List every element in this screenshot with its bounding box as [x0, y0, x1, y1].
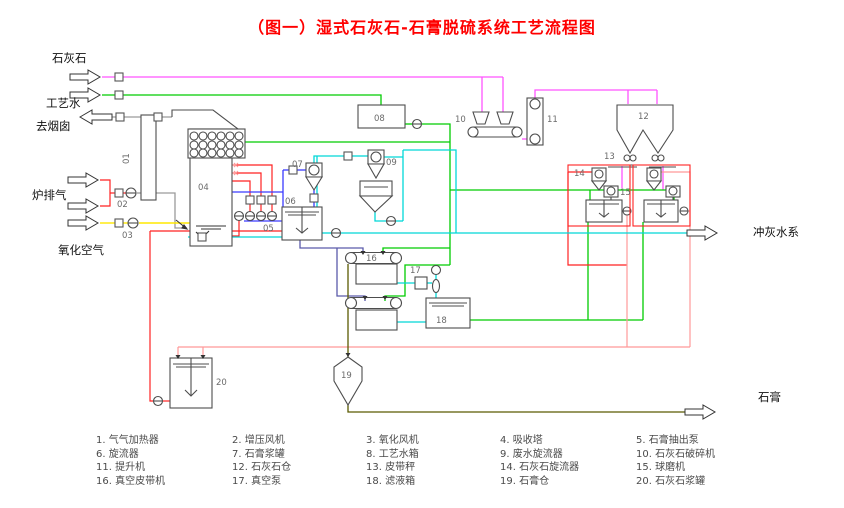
filtrate-water-line [188, 150, 687, 322]
tag-02: 02 [117, 200, 128, 210]
legend-item: 14. 石灰石旋流器 [500, 458, 636, 472]
tag-19: 19 [341, 371, 352, 381]
legend-item: 9. 废水旋流器 [500, 445, 636, 459]
tag-18: 18 [436, 316, 447, 326]
legend-item: 11. 提升机 [96, 458, 232, 472]
boiler-gas-arrow-1 [68, 173, 98, 187]
flow-diagram-page: （图一）湿式石灰石-石膏脱硫系统工艺流程图 [0, 0, 844, 508]
legend-item: 15. 球磨机 [636, 458, 786, 472]
ash-flush-label: 冲灰水系 [753, 225, 799, 239]
legend-item: 6. 旋流器 [96, 445, 232, 459]
process-water-pump [413, 120, 422, 129]
legend-item: 10. 石灰石破碎机 [636, 445, 786, 459]
tag-08: 08 [374, 114, 385, 124]
limestone-in-arrow [70, 70, 100, 84]
gypsum-label: 石膏 [758, 390, 781, 404]
to-stack-label: 去烟囱 [36, 119, 71, 133]
bucket-elevator [527, 98, 543, 145]
ash-flush-water-arrow [687, 226, 717, 240]
tag-06: 06 [285, 197, 296, 207]
limestone-tank-pump [154, 397, 163, 406]
mill-slurry-tank-2 [644, 200, 678, 222]
gypsum-out-arrow [685, 405, 715, 419]
legend-item: 8. 工艺水箱 [366, 445, 500, 459]
tag-09: 09 [386, 158, 397, 168]
oxidation-air-label: 氧化空气 [58, 243, 104, 257]
gypsum-slurry-tank [282, 207, 322, 240]
legend-item: 13. 皮带秤 [366, 458, 500, 472]
tag-13: 13 [604, 152, 615, 162]
legend-item: 7. 石膏浆罐 [232, 445, 366, 459]
legend-item: 4. 吸收塔 [500, 431, 636, 445]
legend-item: 18. 滤液箱 [366, 472, 500, 486]
demister-elements [190, 132, 243, 157]
ball-mill-1 [604, 186, 618, 200]
gypsum-silo [334, 357, 362, 405]
legend-item: 20. 石灰石浆罐 [636, 472, 786, 486]
io-labels: 石灰石 工艺水 去烟囱 炉排气 氧化空气 冲灰水系 石膏 [32, 51, 799, 404]
legend-item: 3. 氧化风机 [366, 431, 500, 445]
wastewater-pump [387, 217, 396, 226]
boiler-gas-label: 炉排气 [32, 188, 67, 202]
to-stack-arrow [80, 110, 112, 124]
silo-feed-arrow [346, 353, 351, 357]
tag-10: 10 [455, 115, 466, 125]
mill-slurry-tank-1 [586, 200, 622, 222]
legend-item: 2. 增压风机 [232, 431, 366, 445]
tag-12: 12 [638, 112, 649, 122]
limestone-crusher [468, 112, 522, 137]
vacuum-belt-2 [346, 298, 402, 331]
process-water-label: 工艺水 [46, 96, 81, 110]
tag-14: 14 [574, 169, 585, 179]
wastewater-tank [360, 181, 392, 212]
wastewater-cyclone [368, 150, 384, 178]
legend-item: 12. 石灰石仓 [232, 458, 366, 472]
gypsum-cyclone [306, 163, 322, 190]
oxidation-fan [128, 218, 138, 228]
boiler-gas-arrow-2 [68, 199, 98, 213]
equipment-legend: 1. 气气加热器 2. 增压风机 3. 氧化风机 4. 吸收塔 5. 石膏抽出泵… [96, 431, 786, 485]
recycle-pumps [235, 212, 277, 221]
legend-item: 17. 真空泵 [232, 472, 366, 486]
gypsum-tank-pump [332, 229, 341, 238]
limestone-cyclone-2 [647, 168, 661, 190]
tag-01: 01 [122, 153, 132, 164]
legend-item: 16. 真空皮带机 [96, 472, 232, 486]
booster-fan [126, 188, 136, 198]
mill-tank-pump-2 [680, 207, 688, 215]
legend-item: 1. 气气加热器 [96, 431, 232, 445]
equipment [115, 73, 688, 408]
legend-item: 19. 石膏仓 [500, 472, 636, 486]
gypsum-solid-line [348, 264, 685, 412]
limestone-label: 石灰石 [52, 51, 87, 65]
tag-16: 16 [366, 254, 377, 264]
slurry-feed-line [300, 240, 365, 301]
absorber-roof-duct [172, 110, 238, 129]
tag-20: 20 [216, 378, 227, 388]
filtrate-tank [426, 298, 470, 328]
limestone-slurry-tank [170, 358, 212, 408]
oxidation-air-arrow [68, 216, 98, 230]
tag-03: 03 [122, 231, 133, 241]
tag-11: 11 [547, 115, 558, 125]
legend-item: 5. 石膏抽出泵 [636, 431, 786, 445]
gas-gas-heater [141, 115, 156, 200]
tag-15: 15 [620, 188, 631, 198]
tag-17: 17 [410, 266, 421, 276]
tag-05: 05 [263, 224, 274, 234]
ball-mill-2 [666, 186, 680, 200]
tag-04: 04 [198, 183, 209, 193]
tag-07: 07 [292, 160, 303, 170]
